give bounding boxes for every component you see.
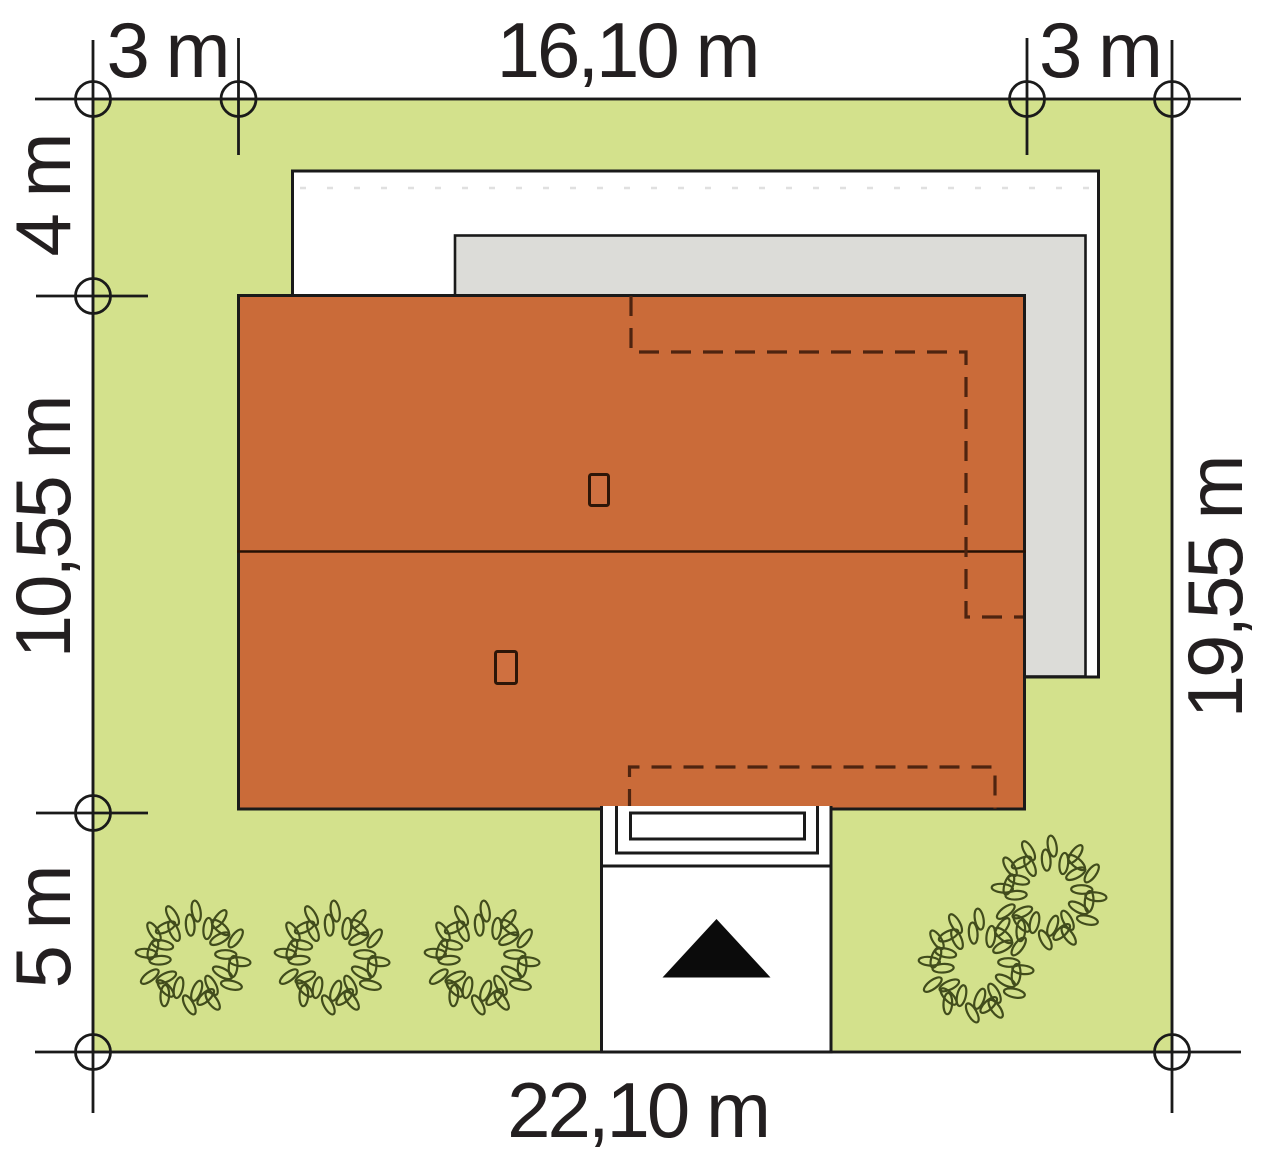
svg-text:19,55 m: 19,55 m bbox=[1171, 458, 1259, 719]
svg-text:3 m: 3 m bbox=[1039, 6, 1160, 94]
svg-text:10,55 m: 10,55 m bbox=[0, 398, 87, 659]
svg-text:22,10 m: 22,10 m bbox=[507, 1066, 768, 1154]
svg-text:3 m: 3 m bbox=[106, 6, 227, 94]
svg-text:4 m: 4 m bbox=[0, 135, 87, 256]
svg-text:5 m: 5 m bbox=[0, 867, 87, 988]
svg-text:16,10 m: 16,10 m bbox=[497, 6, 758, 94]
